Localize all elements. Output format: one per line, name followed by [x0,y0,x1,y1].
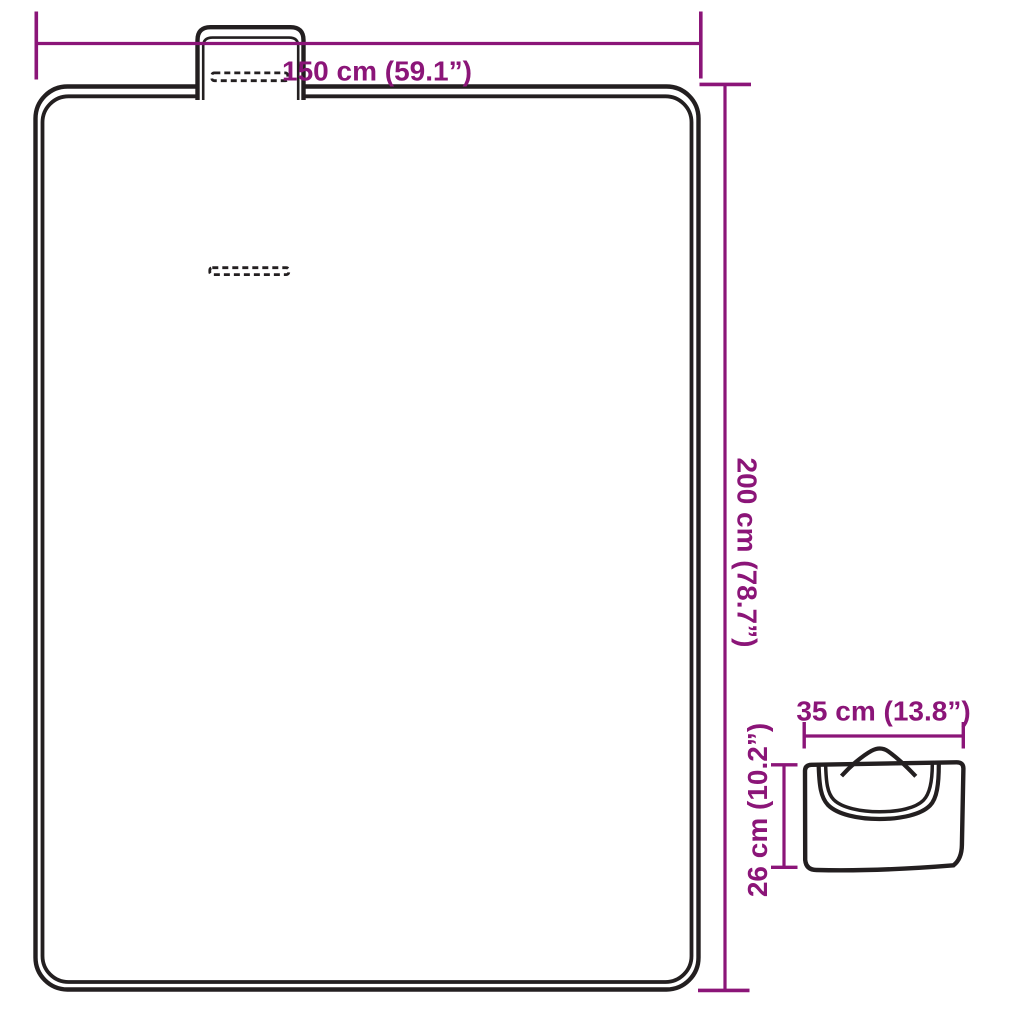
svg-text:35 cm (13.8”): 35 cm (13.8”) [796,696,970,727]
svg-text:26 cm (10.2”): 26 cm (10.2”) [742,723,773,897]
svg-text:150 cm (59.1”): 150 cm (59.1”) [282,55,472,86]
svg-text:200 cm (78.7”): 200 cm (78.7”) [731,458,762,648]
